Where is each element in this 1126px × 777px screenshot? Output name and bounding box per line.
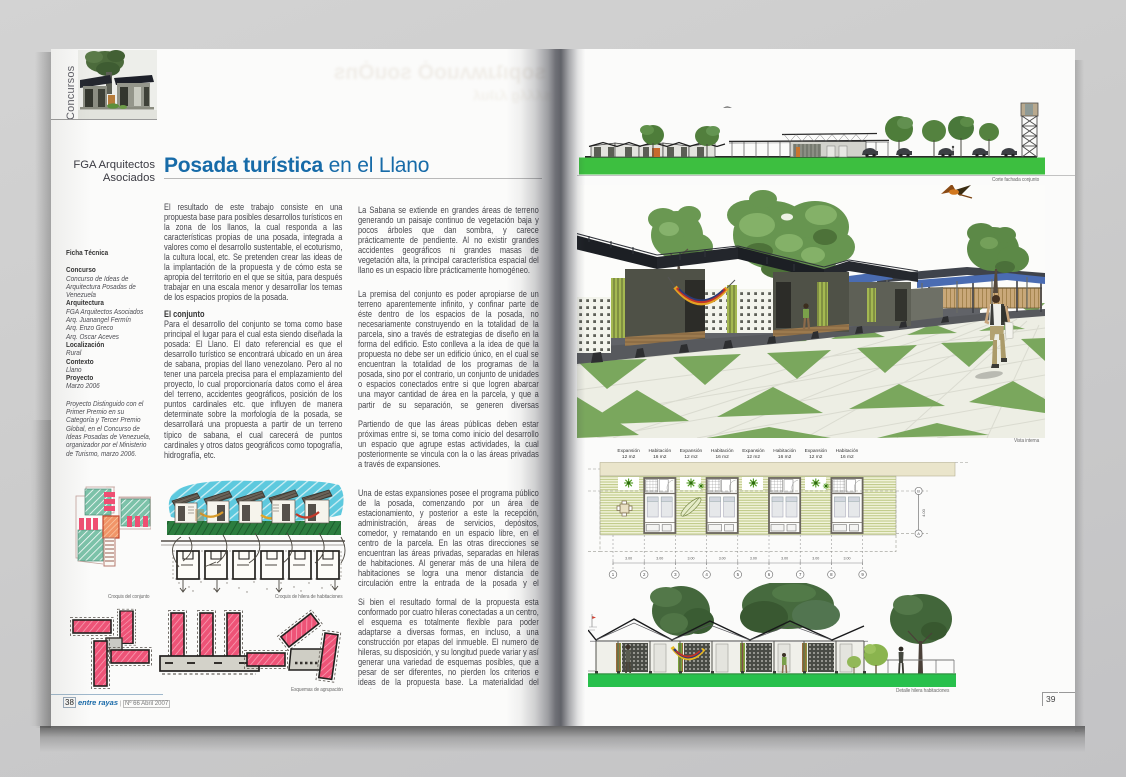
svg-text:B: B — [917, 488, 920, 493]
svg-text:12 m2: 12 m2 — [747, 454, 761, 460]
svg-text:Expansión: Expansión — [805, 448, 828, 454]
svg-text:16 m2: 16 m2 — [653, 454, 667, 460]
svg-text:Habitación: Habitación — [836, 448, 859, 454]
svg-text:Habitación: Habitación — [773, 448, 796, 454]
svg-text:3.00: 3.00 — [656, 557, 663, 561]
svg-text:Expansión: Expansión — [617, 448, 640, 454]
svg-text:Expansión: Expansión — [742, 448, 765, 454]
svg-text:4.00: 4.00 — [921, 508, 926, 517]
svg-text:A: A — [917, 531, 920, 536]
svg-text:16 m2: 16 m2 — [840, 454, 854, 460]
svg-text:3.00: 3.00 — [844, 557, 851, 561]
svg-text:3.00: 3.00 — [688, 557, 695, 561]
svg-text:Expansión: Expansión — [680, 448, 703, 454]
svg-text:3.00: 3.00 — [750, 557, 757, 561]
svg-text:3.00: 3.00 — [625, 557, 632, 561]
svg-text:12 m2: 12 m2 — [684, 454, 698, 460]
svg-text:16 m2: 16 m2 — [716, 454, 730, 460]
svg-text:3.00: 3.00 — [781, 557, 788, 561]
svg-text:16 m2: 16 m2 — [778, 454, 792, 460]
svg-text:12 m2: 12 m2 — [622, 454, 636, 460]
svg-text:12 m2: 12 m2 — [809, 454, 823, 460]
svg-text:Habitación: Habitación — [711, 448, 734, 454]
svg-text:3.00: 3.00 — [719, 557, 726, 561]
svg-text:Habitación: Habitación — [648, 448, 671, 454]
svg-text:3.00: 3.00 — [812, 557, 819, 561]
